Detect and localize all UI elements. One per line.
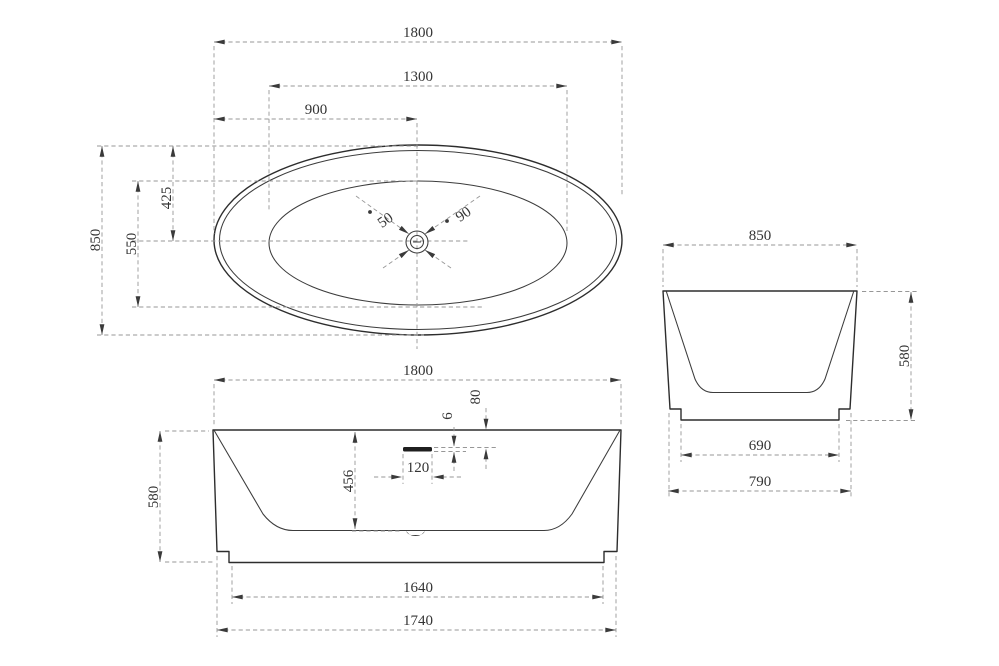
dim-end-base-width: 690: [681, 438, 839, 455]
drain-diameter-label: 50: [375, 210, 396, 232]
dim-label: 80: [468, 390, 484, 405]
end-view: 850 580 690 790: [663, 228, 918, 498]
end-basin-profile: [667, 292, 854, 393]
drain: 50 90: [356, 196, 480, 268]
dim-front-base-length: 1640: [232, 580, 603, 597]
dim-label: 1640: [403, 580, 433, 596]
dim-top-half-width: 425: [159, 146, 175, 241]
dim-end-skirt-width: 790: [668, 474, 851, 491]
dim-top-basin-width: 550: [124, 181, 140, 307]
dim-front-height: 580: [146, 431, 162, 562]
leader-line: [425, 250, 451, 268]
dim-end-overall-width: 850: [663, 228, 857, 245]
dim-front-inner-depth: 456: [341, 432, 357, 529]
front-basin-profile: [215, 431, 620, 531]
dim-label: 580: [146, 486, 162, 509]
dim-label: 550: [124, 233, 140, 256]
dim-label: 1800: [403, 25, 433, 41]
dim-end-overall-height: 580: [897, 292, 913, 420]
dim-front-overflow-height: 6: [440, 412, 456, 471]
dim-label: 425: [159, 187, 175, 210]
dim-label: 580: [897, 345, 913, 368]
dim-top-drain-offset: 900: [214, 102, 417, 119]
dim-label: 690: [749, 438, 772, 454]
dim-label: 456: [341, 469, 357, 492]
end-outline: [663, 291, 857, 420]
dim-label: 1300: [403, 69, 433, 85]
dim-label: 900: [305, 102, 328, 118]
dim-top-basin-length: 1300: [269, 69, 567, 86]
dim-label: 1800: [403, 363, 433, 379]
rim-inner-ellipse: [220, 151, 617, 330]
dim-label: 790: [749, 474, 772, 490]
rim-outer-ellipse: [214, 145, 622, 335]
diameter-dot: [445, 219, 449, 223]
dim-front-skirt-length: 1740: [217, 613, 616, 630]
front-view: 1800 580 456 120 6 80 1640: [146, 363, 621, 637]
bathtub-technical-drawing: 1800 1300 900 850 550 425: [0, 0, 999, 666]
dim-label: 850: [749, 228, 772, 244]
basin-ellipse: [269, 181, 567, 305]
dim-front-overall-length: 1800: [214, 363, 621, 380]
dim-label: 1740: [403, 613, 433, 629]
overflow-slot: [403, 447, 432, 452]
drawing-sheet: 1800 1300 900 850 550 425: [0, 0, 999, 666]
dim-top-overall-width: 850: [88, 146, 104, 335]
dim-label: 850: [88, 229, 104, 252]
dim-top-overall-length: 1800: [214, 25, 622, 42]
diameter-dot: [368, 210, 372, 214]
bottom-drain-outline: [406, 531, 425, 536]
overflow-diameter-label: 90: [453, 204, 474, 226]
dim-front-overflow-width: 120: [374, 460, 461, 477]
dim-label: 6: [440, 412, 456, 420]
top-view: 1800 1300 900 850 550 425: [88, 25, 622, 349]
dim-front-overflow-offset: 80: [468, 390, 486, 470]
leader-line: [383, 250, 409, 268]
dim-label: 120: [407, 460, 430, 476]
